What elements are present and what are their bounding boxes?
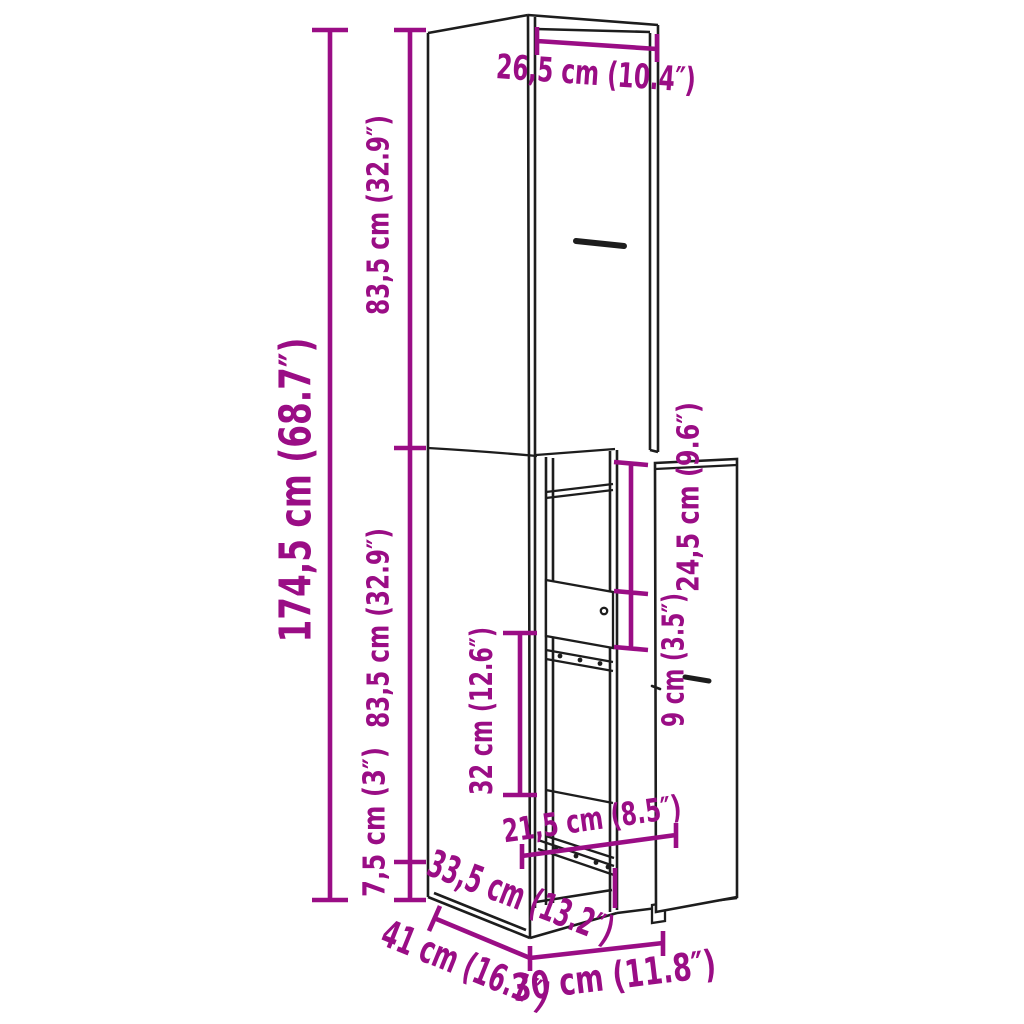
dim-label-total-height: 174,5 cm (68.7″)	[271, 338, 322, 643]
dim-label-drawer-front-height: 9 cm (3.5″)	[657, 593, 692, 727]
dim-line-lower-opening	[503, 633, 537, 795]
dim-label-front-width: 30 cm (11.8″)	[510, 942, 719, 1011]
dim-label-lower-section-height: 83,5 cm (32.9″)	[362, 528, 397, 728]
upper-door-handle-icon	[576, 241, 624, 246]
dimension-diagram: 174,5 cm (68.7″) 83,5 cm (32.9″) 83,5 cm…	[0, 0, 1024, 1024]
interior-shelf	[546, 484, 613, 498]
dim-label-upper-opening-height: 24,5 cm (9.6″)	[672, 402, 707, 592]
dim-label-plinth-height: 7,5 cm (3″)	[358, 747, 393, 897]
dim-label-lower-opening-height: 32 cm (12.6″)	[464, 627, 500, 795]
cabinet-dimension-drawing: 174,5 cm (68.7″) 83,5 cm (32.9″) 83,5 cm…	[0, 0, 1024, 1024]
dim-label-top-width: 26,5 cm (10.4″)	[495, 47, 697, 101]
dim-line-opening-heights	[614, 462, 648, 650]
drawer-knob-icon	[601, 608, 607, 614]
dim-line-section-heights	[394, 30, 426, 900]
section-division-line	[428, 448, 537, 456]
upper-door-bottom-edge	[536, 449, 615, 455]
dim-label-upper-section-height: 83,5 cm (32.9″)	[362, 115, 397, 315]
cabinet-side-panel	[428, 15, 530, 938]
